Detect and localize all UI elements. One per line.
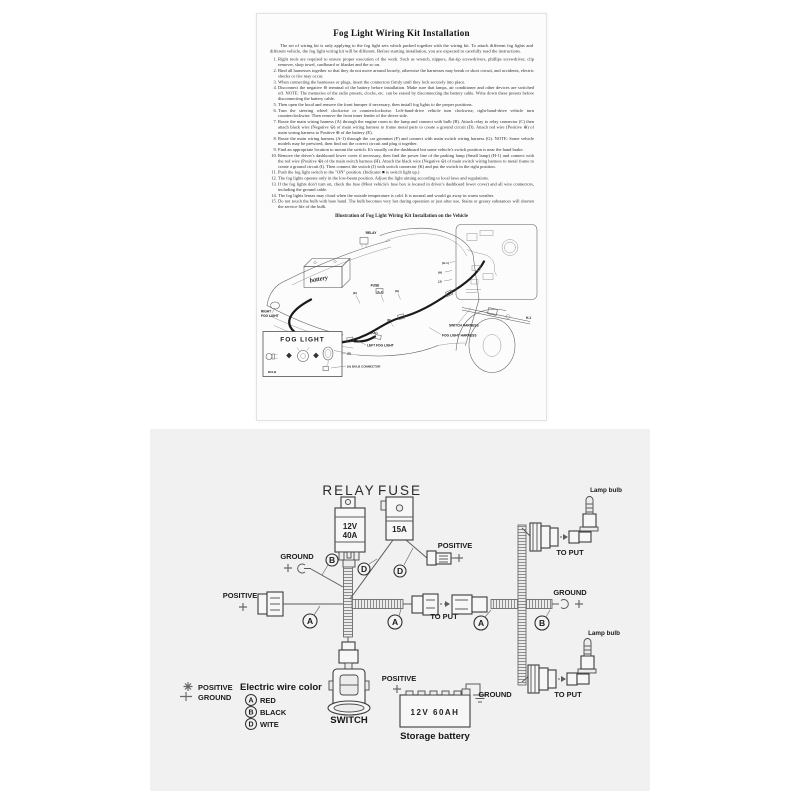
legend-positive: POSITIVE (198, 683, 233, 692)
svg-text:D: D (397, 566, 403, 576)
illus-tag-e: (E) (353, 291, 357, 295)
fog-light-detail-box: FOG LIGHT (263, 331, 342, 376)
wire-tag-d: D (358, 563, 370, 575)
legend-white: WITE (260, 720, 279, 729)
legend-tag-d: D (246, 719, 257, 730)
ground-terminal (284, 564, 311, 573)
svg-text:B: B (539, 618, 545, 628)
wiring-diagram-panel: RELAY 12V 40A FUSE 15A D D POSITIVE (150, 429, 650, 791)
illus-tag-h: (H) (438, 270, 442, 274)
instruction-item: Do not touch the bulb with bare hand. Th… (278, 199, 534, 210)
instruction-list: Right tools are required to ensure prope… (270, 57, 534, 210)
relay-component: 12V 40A (335, 497, 365, 567)
positive-label: POSITIVE (223, 591, 258, 600)
lamp-bulb-assembly-top (530, 497, 598, 552)
ground-label: GROUND (478, 690, 512, 699)
illus-right-fog-light: RIGHT (261, 309, 271, 313)
illus-tag-j: (J) (438, 279, 442, 283)
illus-tag-a1: (A-1) (377, 290, 384, 294)
illus-switch-harness-label: SWITCH HARNESS (449, 323, 479, 327)
main-harness-vertical (344, 567, 353, 637)
illus-tag-g: (G) (395, 289, 399, 293)
product-image: { "sheet": { "title": "Fog Light Wiring … (0, 0, 800, 800)
wiring-diagram: RELAY 12V 40A FUSE 15A D D POSITIVE (150, 429, 650, 791)
instruction-item: If the fog lights don't turn on, check t… (278, 181, 534, 192)
illus-left-fog-light: LEFT FOG LIGHT (367, 343, 394, 347)
fog-light-box-title: FOG LIGHT (280, 336, 324, 343)
svg-text:B: B (248, 710, 253, 717)
svg-text:D: D (248, 722, 253, 729)
dashboard-inset (456, 224, 537, 299)
instruction-item: The fog lights operate only in the low-b… (278, 176, 534, 181)
positive-label: POSITIVE (382, 674, 417, 683)
sheet-title: Fog Light Wiring Kit Installation (257, 28, 546, 39)
to-put-label: TO PUT (554, 690, 582, 699)
relay-label: RELAY (322, 483, 375, 498)
legend-tag-a: A (246, 695, 257, 706)
switch-component (328, 642, 370, 715)
storage-battery-label: Storage battery (400, 731, 470, 742)
legend: POSITIVE GROUND Electric wire color A RE… (180, 682, 322, 730)
fuse-label: FUSE (378, 483, 422, 498)
wire-tag-a: A (303, 614, 317, 628)
legend-title: Electric wire color (240, 682, 322, 693)
illus-fuse-label: FUSE (371, 283, 381, 287)
relay-sketch (360, 237, 368, 247)
wiring-harness-sketch (289, 261, 484, 342)
instruction-item: Find an appropriate location to mount th… (278, 147, 534, 152)
right-ground-terminal (552, 600, 583, 609)
instruction-item: Route the main wiring harness (A) throug… (278, 119, 534, 135)
instruction-sheet-content: Fog Light Wiring Kit Installation The se… (257, 28, 546, 421)
relay-spec-volts: 12V (343, 522, 358, 531)
illus-tag-h1: (H-1) (442, 261, 449, 265)
ground-label: GROUND (280, 552, 314, 561)
instruction-item: Bind all harnesses together so that they… (278, 68, 534, 79)
wire-tag-a: A (388, 615, 402, 629)
to-put-label: TO PUT (556, 548, 584, 557)
illus-tag-ab: (A/B) (370, 331, 377, 335)
fuse-component: 15A (381, 497, 413, 540)
instruction-item: Right tools are required to ensure prope… (278, 57, 534, 68)
svg-text:A: A (248, 698, 253, 705)
svg-text:B: B (329, 555, 335, 565)
instruction-item: When connecting the harnesses or plugs, … (278, 79, 534, 84)
storage-battery: 12V 60AH (400, 684, 487, 727)
legend-black: BLACK (260, 708, 287, 717)
harness-vertical-right (518, 525, 526, 685)
illustration-caption: Illustration of Fog Light Wiring Kit Ins… (257, 213, 546, 219)
illus-h1-part-label: H-1 (526, 316, 531, 320)
svg-text:D: D (361, 564, 367, 574)
illus-tag-d: (D) (387, 318, 391, 322)
positive-connector (427, 551, 463, 565)
harness-horizontal-1 (352, 600, 403, 609)
wire-tag-d: D (394, 565, 406, 577)
instruction-sheet: Fog Light Wiring Kit Installation The se… (256, 13, 547, 421)
wire-tag-b: B (535, 616, 549, 630)
positive-label: POSITIVE (438, 541, 473, 550)
instruction-item: Turn the steering wheel clockwise or cou… (278, 108, 534, 119)
fuse-spec: 15A (392, 525, 407, 534)
svg-text:A: A (307, 616, 313, 626)
sheet-intro: The set of wiring kit is only applying t… (270, 43, 533, 54)
battery-spec: 12V 60AH (411, 708, 460, 717)
lamp-bulb-label: Lamp bulb (588, 630, 620, 637)
illus-right-fog-light2: FOG LIGHT (261, 314, 279, 318)
mid-connector-right (452, 595, 487, 614)
illus-bulb-connector-label: (A) BULB CONNECTOR (347, 364, 381, 368)
lamp-bulb-label: Lamp bulb (590, 487, 622, 494)
illus-bulb-label: BULB (268, 370, 277, 374)
instruction-item: Remove the driver's dashboard lower cove… (278, 153, 534, 169)
legend-red: RED (260, 696, 276, 705)
instruction-item: Disconnect the negative ⊖ terminal of th… (278, 85, 534, 101)
vehicle-illustration: battery RELAY FUSE (257, 219, 546, 385)
illus-relay-label: RELAY (366, 231, 378, 235)
illus-tag-b: (B) (347, 351, 351, 355)
instruction-item: Push the fog light switch to the "ON" po… (278, 170, 534, 175)
switch-label: SWITCH (330, 715, 368, 726)
instruction-item: The fog lights lenses may cloud when the… (278, 193, 534, 198)
illus-fog-light-harness-label: FOG LIGHT HARNESS (442, 333, 477, 337)
instruction-item: Then open the hood and remove the front … (278, 102, 534, 107)
instruction-item: Route the main wiring harness (A-1) thro… (278, 136, 534, 147)
svg-text:A: A (478, 618, 484, 628)
svg-text:A: A (392, 617, 398, 627)
ground-label: GROUND (553, 588, 587, 597)
lamp-bulb-assembly-bottom (528, 639, 596, 694)
wire-tag-b: B (326, 554, 338, 566)
left-positive-connector (258, 592, 283, 616)
wire-tag-a: A (474, 616, 488, 630)
legend-ground: GROUND (198, 693, 232, 702)
relay-spec-amps: 40A (343, 531, 358, 540)
legend-tag-b: B (246, 707, 257, 718)
